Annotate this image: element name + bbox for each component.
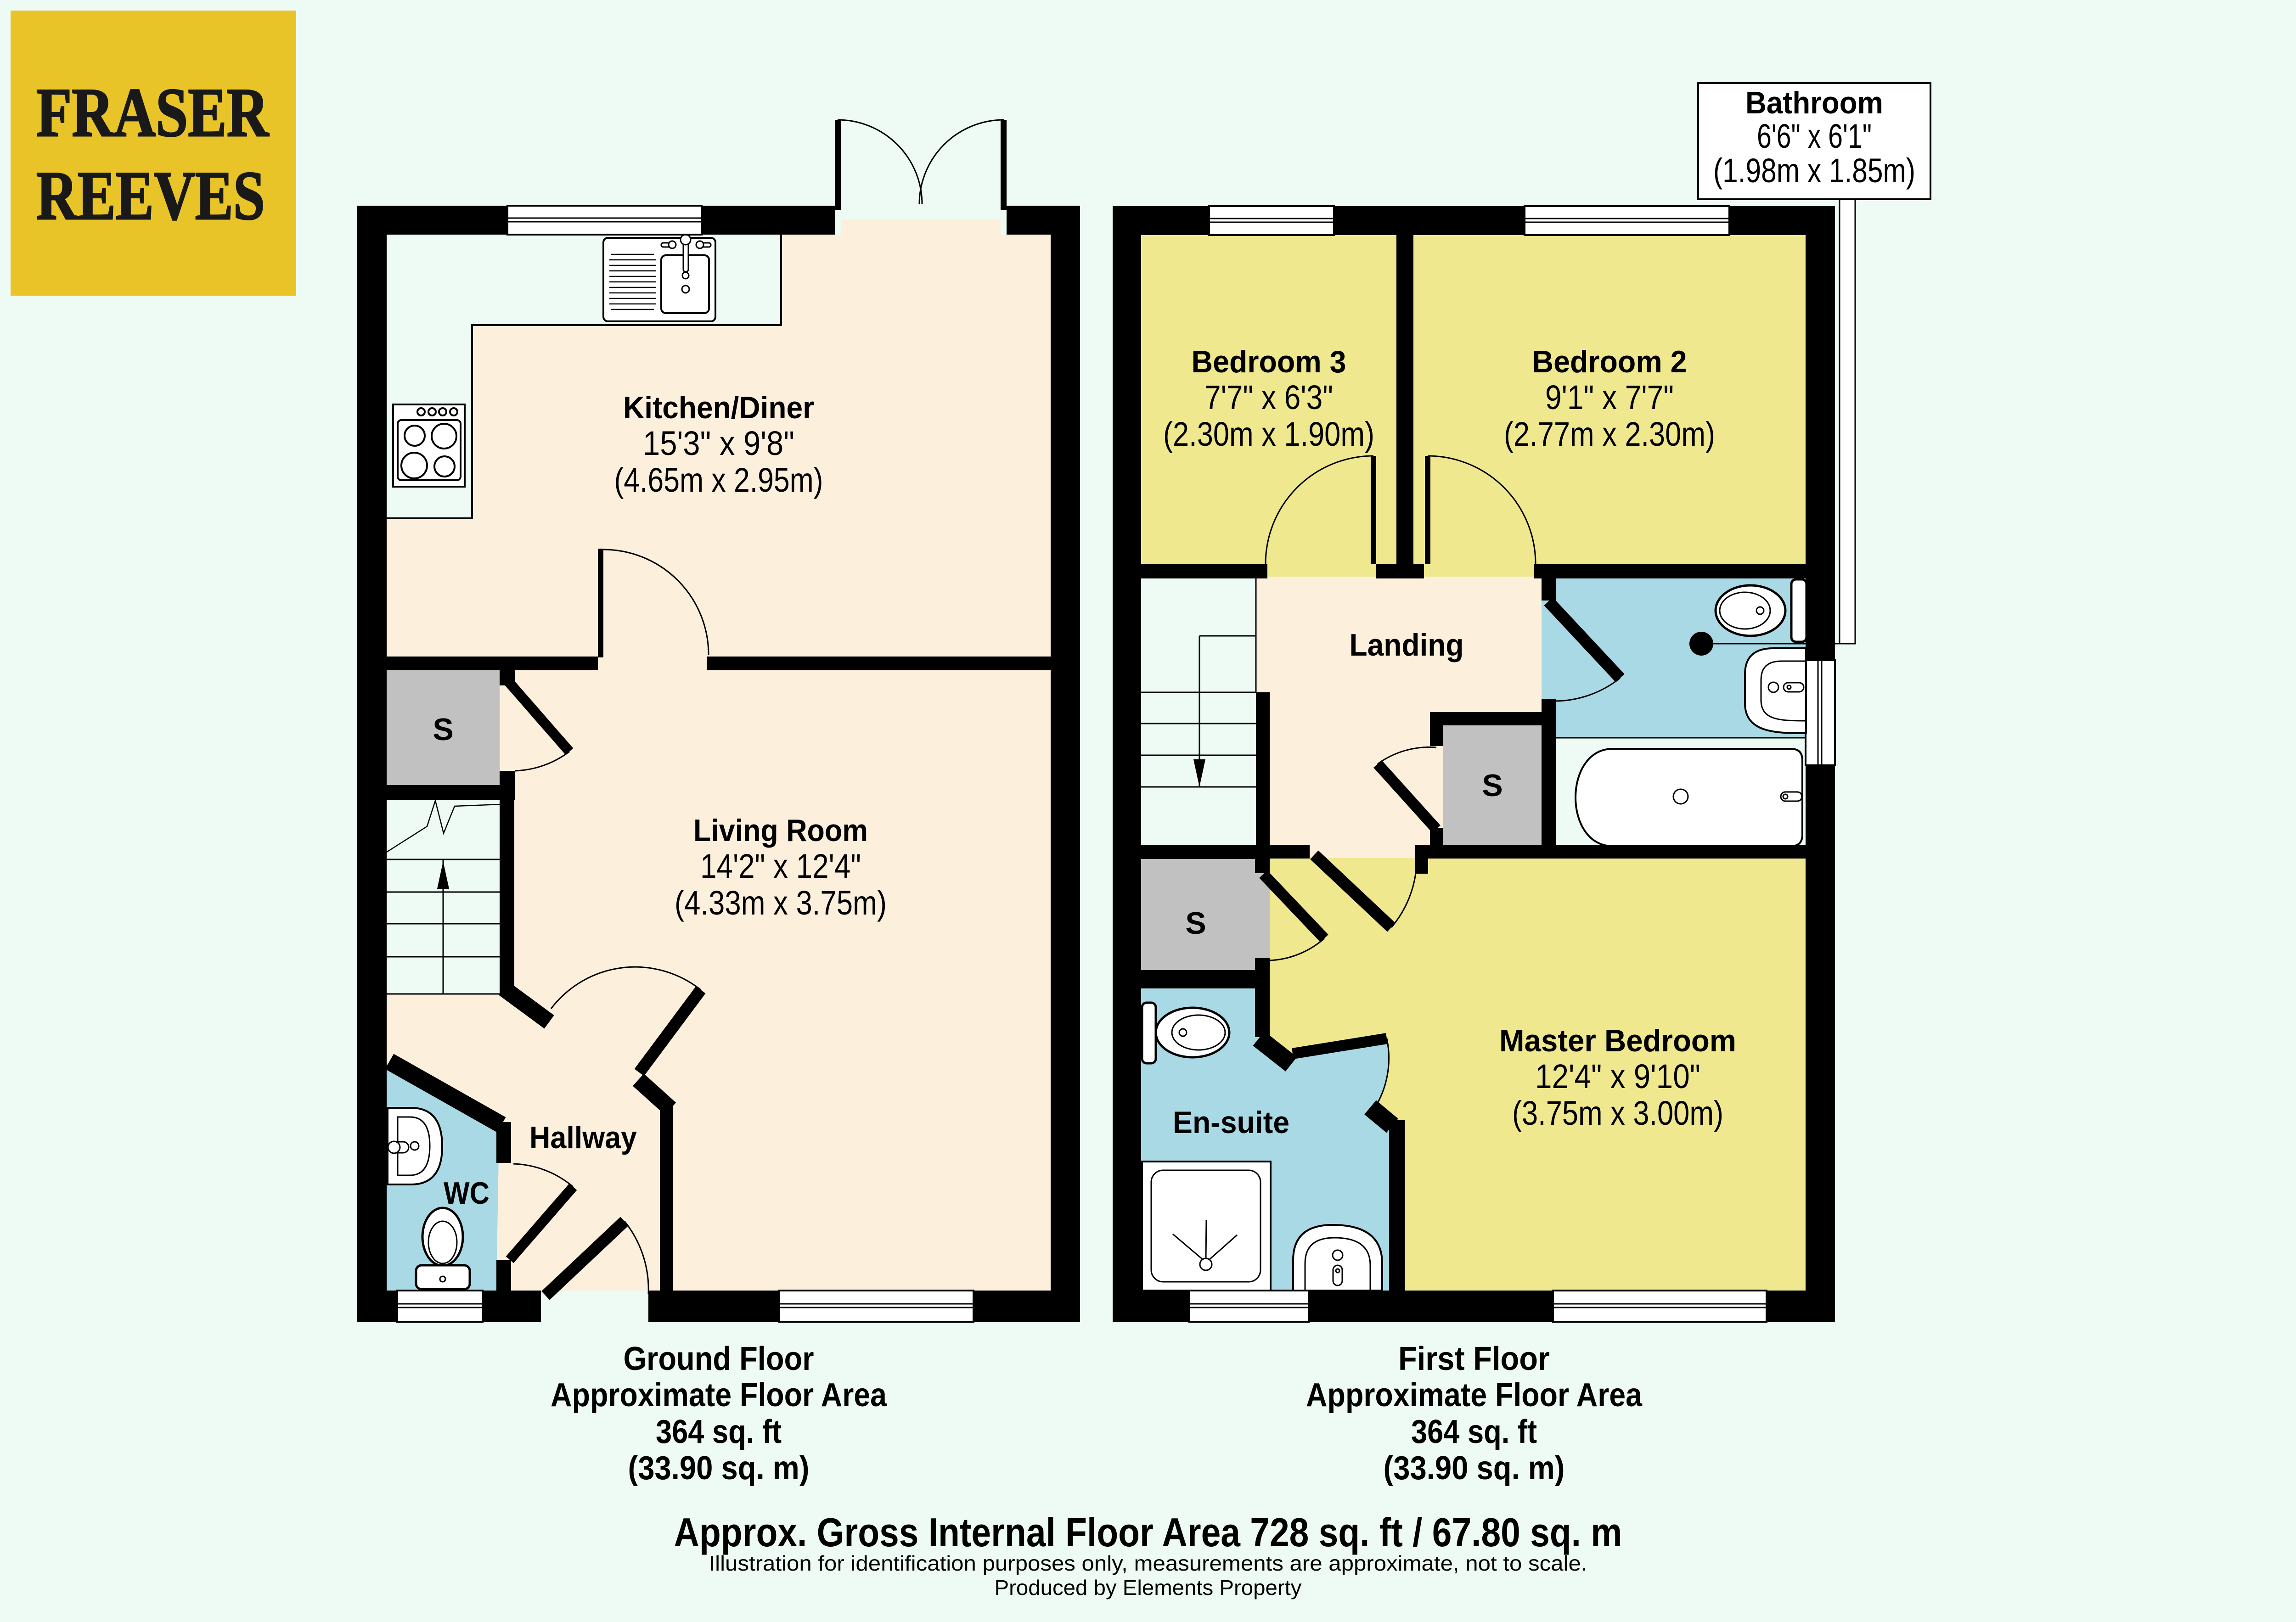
svg-text:7'7" x 6'3": 7'7" x 6'3"	[1204, 378, 1333, 416]
svg-text:(3.75m x 3.00m): (3.75m x 3.00m)	[1512, 1094, 1723, 1132]
svg-text:S: S	[1482, 768, 1503, 803]
svg-text:364 sq. ft: 364 sq. ft	[1411, 1414, 1537, 1450]
svg-text:15'3" x 9'8": 15'3" x 9'8"	[643, 424, 794, 462]
svg-text:WC: WC	[444, 1176, 490, 1211]
svg-text:Approximate Floor Area: Approximate Floor Area	[1306, 1377, 1643, 1414]
svg-text:Kitchen/Diner: Kitchen/Diner	[623, 390, 814, 425]
svg-text:S: S	[433, 712, 453, 747]
svg-text:Landing: Landing	[1350, 628, 1464, 662]
svg-text:Bathroom: Bathroom	[1745, 85, 1883, 120]
svg-text:Approximate Floor Area: Approximate Floor Area	[551, 1377, 887, 1414]
svg-text:Produced by Elements Property: Produced by Elements Property	[995, 1576, 1302, 1600]
svg-text:Living Room: Living Room	[693, 813, 868, 848]
svg-text:FRASER: FRASER	[36, 74, 270, 151]
svg-text:(33.90 sq. m): (33.90 sq. m)	[628, 1450, 810, 1487]
svg-text:Illustration for identificatio: Illustration for identification purposes…	[709, 1551, 1587, 1575]
svg-text:Master Bedroom: Master Bedroom	[1499, 1023, 1736, 1058]
svg-text:(4.33m x 3.75m): (4.33m x 3.75m)	[675, 884, 887, 922]
svg-text:(4.65m x 2.95m): (4.65m x 2.95m)	[614, 461, 823, 499]
svg-text:(1.98m x 1.85m): (1.98m x 1.85m)	[1713, 152, 1915, 190]
svg-text:12'4" x 9'10": 12'4" x 9'10"	[1535, 1057, 1700, 1095]
svg-text:Bedroom 2: Bedroom 2	[1532, 344, 1687, 379]
svg-text:(33.90 sq. m): (33.90 sq. m)	[1384, 1450, 1565, 1487]
svg-text:First Floor: First Floor	[1398, 1341, 1550, 1377]
svg-text:Bedroom 3: Bedroom 3	[1192, 344, 1346, 379]
svg-text:9'1" x 7'7": 9'1" x 7'7"	[1545, 378, 1674, 416]
svg-text:S: S	[1185, 906, 1206, 941]
svg-text:Ground Floor: Ground Floor	[624, 1341, 814, 1377]
svg-text:(2.77m x 2.30m): (2.77m x 2.30m)	[1504, 415, 1715, 453]
svg-text:6'6" x 6'1": 6'6" x 6'1"	[1757, 117, 1872, 155]
svg-text:REEVES: REEVES	[36, 157, 265, 234]
svg-text:(2.30m x 1.90m): (2.30m x 1.90m)	[1163, 415, 1374, 453]
svg-text:Hallway: Hallway	[529, 1120, 637, 1155]
svg-text:14'2" x 12'4": 14'2" x 12'4"	[700, 847, 861, 885]
svg-text:Approx. Gross Internal Floor A: Approx. Gross Internal Floor Area 728 sq…	[674, 1510, 1622, 1555]
svg-text:En-suite: En-suite	[1173, 1105, 1289, 1140]
svg-text:364 sq. ft: 364 sq. ft	[656, 1414, 782, 1450]
